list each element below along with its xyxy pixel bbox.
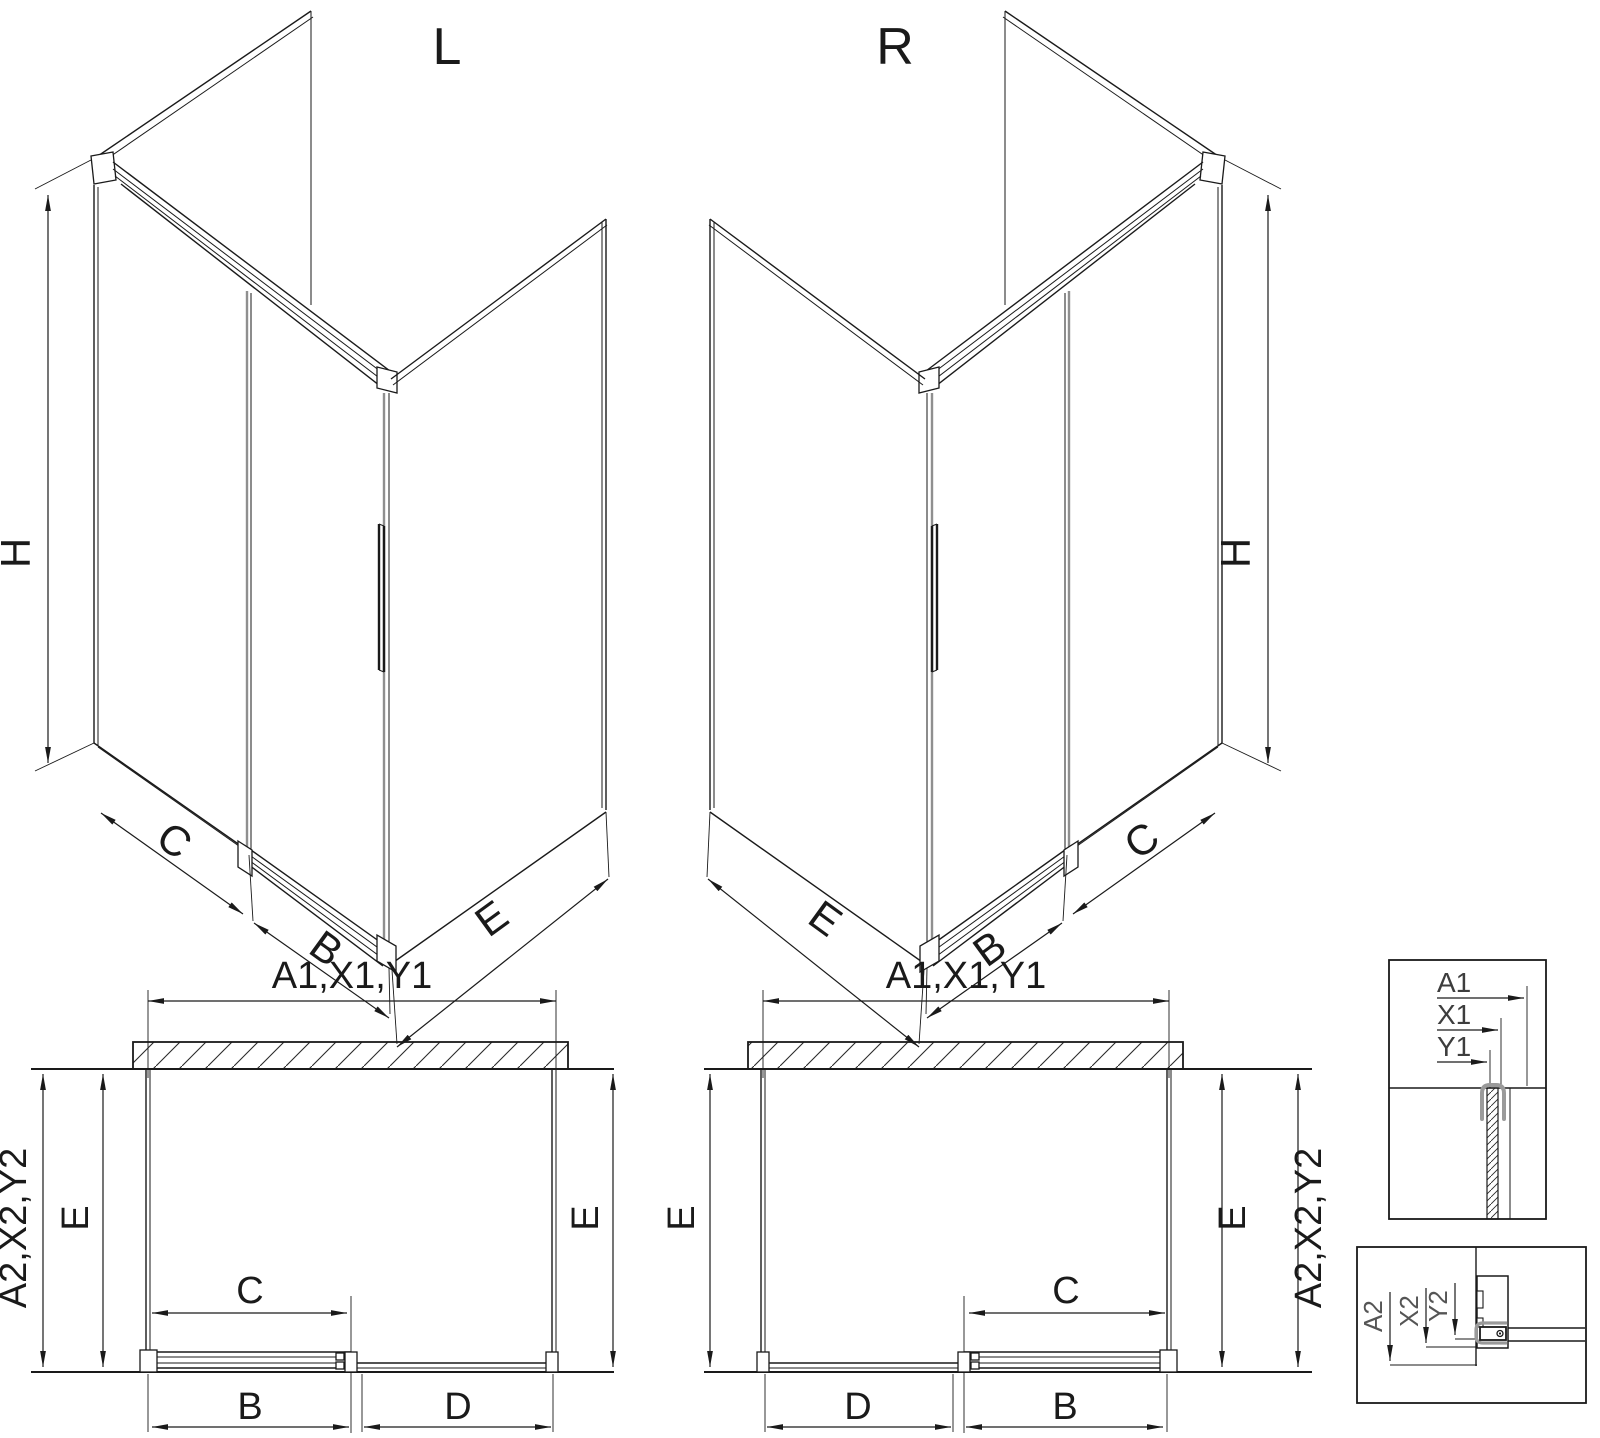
iso-view-right: R — [707, 11, 1281, 1047]
plan-left-top-dim-label: A1,X1,Y1 — [272, 955, 433, 997]
corner-bracket-top-right — [1200, 152, 1225, 184]
glass-section-hatch — [1487, 1088, 1498, 1219]
corner-post-cap — [377, 367, 397, 393]
plan-left-depth-right-label: E — [565, 1205, 607, 1230]
plan-left-side-dim-label: A2,X2,Y2 — [0, 1148, 35, 1309]
iso-right-return-label: E — [800, 891, 850, 945]
plan-right-depth-left-label: E — [661, 1205, 703, 1230]
detail-floor-label-y2: Y2 — [1423, 1290, 1453, 1322]
door-handle — [932, 524, 937, 672]
dim-side-right: C — [1073, 812, 1215, 914]
shower-enclosure-technical-drawing: L — [0, 0, 1600, 1438]
corner-post-cap — [919, 367, 939, 393]
iso-left-side-label: C — [148, 812, 200, 868]
plan-left-depth-left-label: E — [55, 1205, 97, 1230]
detail-floor-label-x2: X2 — [1394, 1295, 1424, 1327]
plan-left-front-left-label: B — [237, 1386, 262, 1428]
detail-wall-label-y1: Y1 — [1437, 1031, 1471, 1062]
door-track — [958, 1350, 1177, 1372]
iso-left-title: L — [433, 18, 462, 76]
plan-left-front-right-label: D — [444, 1386, 471, 1428]
corner-bracket-top-left — [91, 152, 116, 184]
iso-right-title: R — [876, 18, 914, 76]
plan-right-depth-right-label: E — [1212, 1205, 1254, 1230]
plan-right-door-dim-label: C — [1052, 1270, 1079, 1312]
door-track — [140, 1350, 357, 1372]
dim-return-left: E — [392, 812, 609, 1047]
plan-left-door-dim-label: C — [236, 1270, 263, 1312]
detail-floor-label-a2: A2 — [1358, 1300, 1388, 1332]
detail-floor-profile: A2 X2 Y2 — [1357, 1247, 1586, 1403]
detail-wall-label-x1: X1 — [1437, 999, 1471, 1030]
plan-view-right: A1,X1,Y1 E E A2,X2,Y2 C — [661, 955, 1330, 1433]
wall-hatch — [133, 1042, 568, 1069]
dim-return-right: E — [707, 812, 924, 1047]
iso-right-height-label: H — [1212, 538, 1259, 568]
plan-view-left: A1,X1,Y1 E E A2,X2,Y2 C — [0, 955, 614, 1433]
detail-wall-profile: A1 X1 Y1 — [1389, 960, 1546, 1219]
plan-right-front-left-label: D — [844, 1386, 871, 1428]
drawing-canvas: L — [0, 0, 1600, 1438]
dim-height-left: H — [0, 160, 94, 771]
wall-hatch — [748, 1042, 1183, 1069]
plan-right-top-dim-label: A1,X1,Y1 — [886, 955, 1047, 997]
iso-right-side-label: C — [1115, 812, 1167, 868]
iso-view-left: L — [0, 11, 609, 1047]
iso-left-return-label: E — [466, 891, 516, 945]
iso-left-height-label: H — [0, 538, 39, 568]
dim-side-left: C — [101, 812, 243, 914]
door-handle — [379, 524, 384, 672]
plan-right-front-right-label: B — [1052, 1386, 1077, 1428]
plan-right-side-dim-label: A2,X2,Y2 — [1288, 1148, 1330, 1309]
detail-wall-label-a1: A1 — [1437, 967, 1471, 998]
